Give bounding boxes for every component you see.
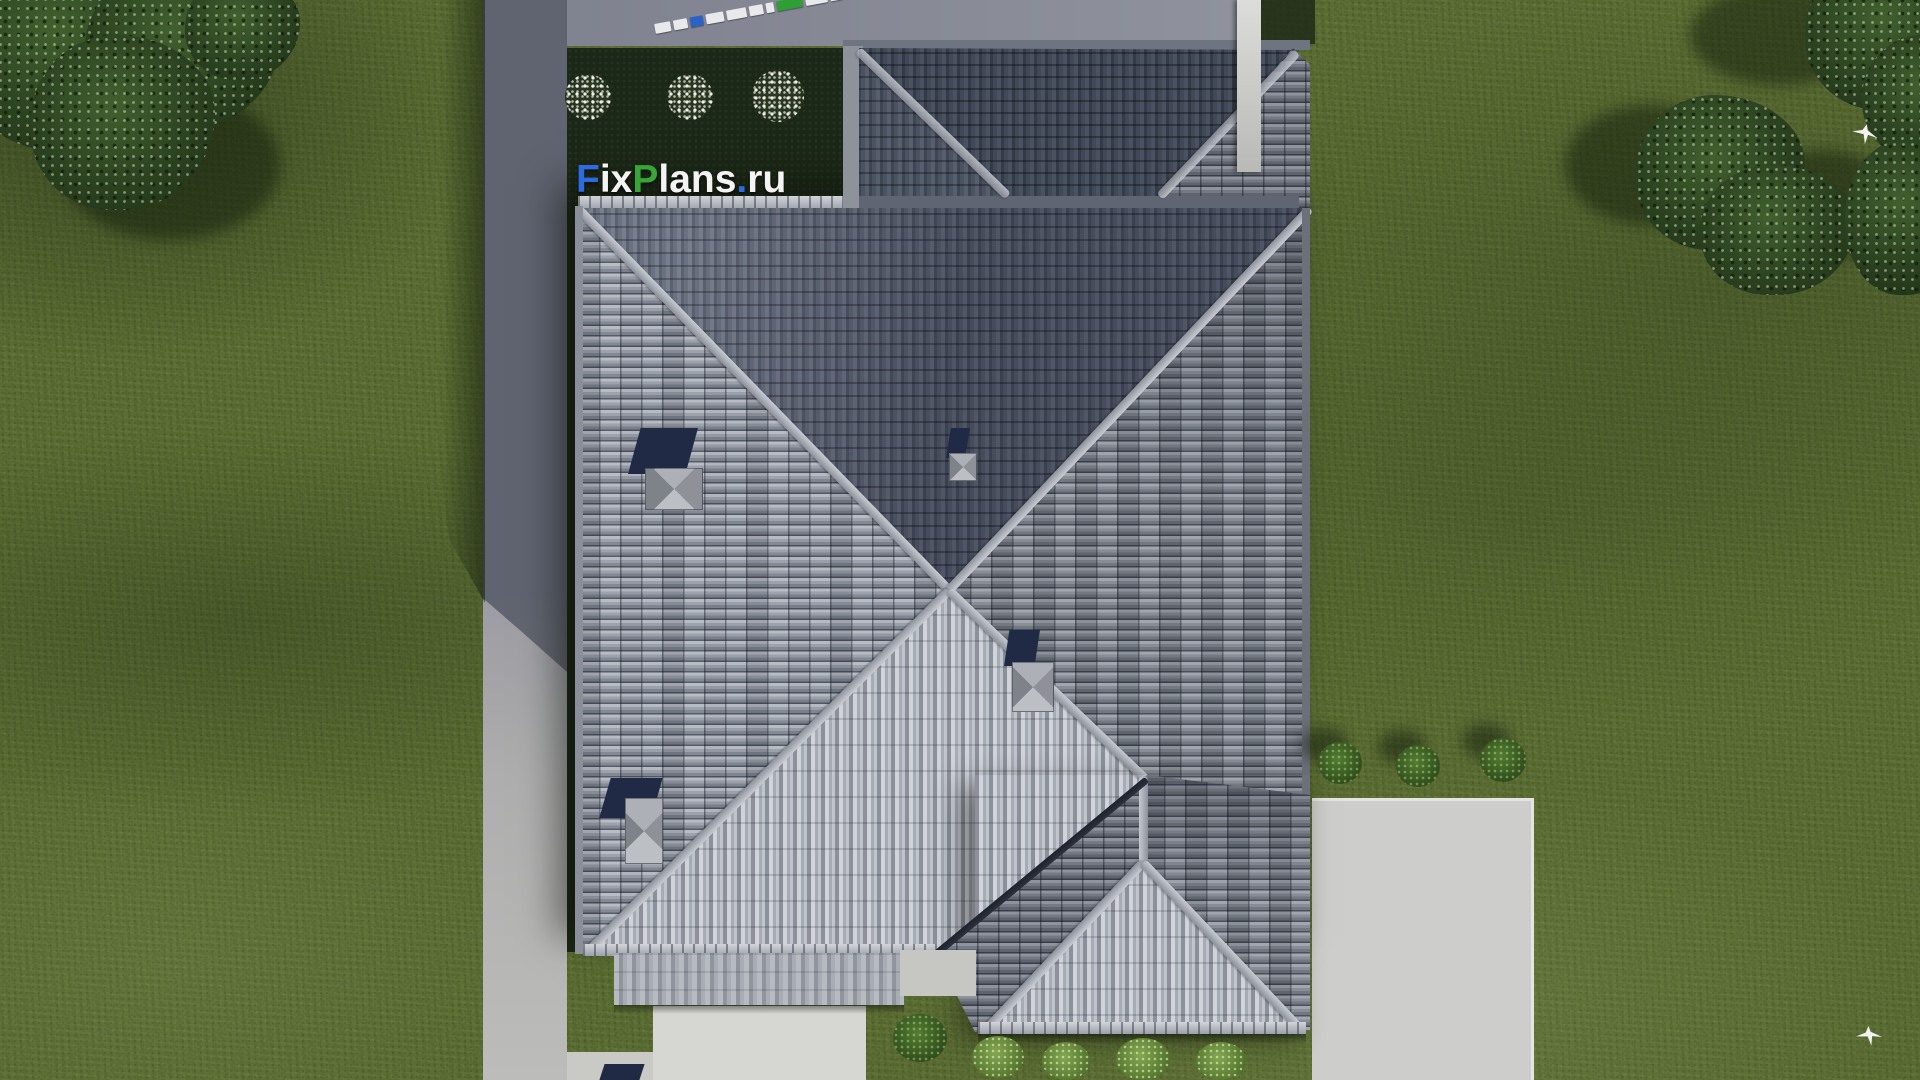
- watermark-part: P: [632, 158, 658, 202]
- flower-bush: [752, 70, 804, 122]
- garden-bush: [1480, 738, 1526, 782]
- logo-strip-block: [765, 2, 775, 13]
- watermark-fixplans: FixPlans.ru: [576, 158, 786, 202]
- watermark-part: ru: [747, 158, 786, 202]
- garden-bush: [972, 1036, 1024, 1078]
- garden-bush: [1116, 1038, 1170, 1080]
- garden-bush: [1396, 745, 1440, 787]
- front-walkway: [653, 1006, 866, 1080]
- flower-bush: [565, 74, 611, 120]
- logo-strip-block: [689, 15, 704, 27]
- porch-ground-shadow: [614, 1005, 904, 1014]
- roof-right-eave: [1302, 206, 1310, 802]
- logo-strip-block: [705, 11, 725, 24]
- roof-vent: [645, 468, 703, 510]
- roof-vent: [1012, 662, 1054, 712]
- porch-roof: [614, 953, 904, 1005]
- white-chimney-wall: [1237, 0, 1261, 172]
- logo-strip-block: [673, 18, 689, 30]
- logo-strip-block: [726, 7, 747, 20]
- roof-vent: [625, 798, 663, 864]
- garden-bush: [893, 1014, 947, 1062]
- garden-bush: [1318, 742, 1362, 784]
- entry-canopy: [900, 950, 976, 996]
- chimney-shadow: [1004, 630, 1040, 666]
- logo-strip-block: [748, 4, 764, 16]
- house-shadow-on-driveway: [483, 0, 567, 672]
- logo-strip-block: [829, 0, 843, 1]
- logo-strip-block: [654, 21, 672, 34]
- roof-vent: [949, 453, 977, 481]
- garage-bottom-eave: [859, 196, 1299, 208]
- watermark-part: lans: [658, 158, 736, 202]
- watermark-part: F: [576, 158, 600, 202]
- flower-bush: [667, 74, 713, 120]
- aerial-site-render: FixPlans.ru: [0, 0, 1920, 1080]
- garden-bush: [1042, 1042, 1090, 1080]
- watermark-part: ix: [600, 158, 633, 202]
- roof-left-eave: [575, 206, 583, 954]
- watermark-part: .: [736, 158, 747, 202]
- entry-skylight: [599, 1064, 644, 1080]
- garden-bush: [1196, 1042, 1246, 1080]
- shaded-lawn-corner: [1261, 0, 1315, 44]
- patio: [1312, 798, 1534, 1080]
- wing-bottom-eave: [978, 1022, 1306, 1034]
